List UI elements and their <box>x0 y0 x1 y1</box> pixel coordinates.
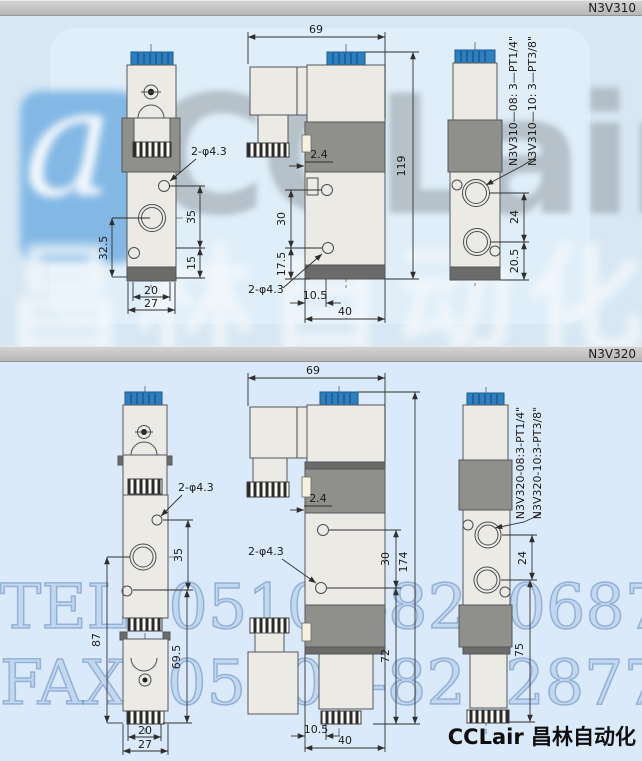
thread-spec-1: N3V320-08:3-PT1/4" <box>514 407 527 520</box>
model-label-n3v310: N3V310 <box>588 1 636 16</box>
thread-spec-2: N3V320-10:3-PT3/8" <box>531 407 544 520</box>
model-header-n3v310: N3V310 <box>0 0 642 16</box>
n3v320-technical-drawing: 2-φ4.3 35 69.5 87 20 27 <box>0 362 642 761</box>
dim-40: 40 <box>338 305 352 318</box>
n3v320-right-view <box>459 387 512 734</box>
valve-datasheet-page: N3V310 a CCLair 昌林自动化 <box>0 0 642 761</box>
dim-40: 40 <box>338 734 352 747</box>
dim-hole-side: 2-φ4.3 <box>248 545 284 558</box>
dim-10-5: 10.5 <box>303 289 328 302</box>
dim-hole-front: 2-φ4.3 <box>178 481 214 494</box>
n3v320-drawing-area: TEL: 0510—82306871 FAX: 0510—82328771 <box>0 362 642 761</box>
dim-27: 27 <box>138 738 152 751</box>
model-label-n3v320: N3V320 <box>588 347 636 362</box>
n3v320-front-view <box>112 386 178 734</box>
dim-hole-front: 2-φ4.3 <box>191 145 227 158</box>
n3v310-side-view <box>247 44 385 288</box>
dim-27: 27 <box>144 297 158 310</box>
dim-15: 15 <box>185 256 198 270</box>
dim-32-5: 32.5 <box>97 236 110 261</box>
dim-24: 24 <box>516 551 529 565</box>
n3v310-right-view <box>448 42 502 288</box>
dim-69: 69 <box>306 364 320 377</box>
dim-2-4: 2.4 <box>310 148 328 161</box>
dim-hole-side: 2-φ4.3 <box>248 283 284 296</box>
dim-75: 75 <box>513 643 526 657</box>
n3v310-front-view <box>116 44 188 288</box>
dim-24: 24 <box>508 210 521 224</box>
dim-69-5: 69.5 <box>170 645 183 670</box>
n3v320-side-view <box>247 386 385 736</box>
dim-30: 30 <box>379 552 392 566</box>
dim-2-4: 2.4 <box>309 492 327 505</box>
dim-35: 35 <box>172 548 185 562</box>
dim-20-5: 20.5 <box>508 249 521 274</box>
dim-87: 87 <box>90 633 103 647</box>
brand-footer-text: CCLair 昌林自动化 <box>448 721 636 751</box>
dim-10-5: 10.5 <box>304 723 329 736</box>
thread-spec-1: N3V310—08: 3—PT1/4" <box>507 36 520 166</box>
dim-174: 174 <box>397 552 410 573</box>
n3v310-technical-drawing: 2-φ4.3 35 15 32.5 20 27 <box>0 16 642 346</box>
dim-35: 35 <box>185 210 198 224</box>
thread-spec-2: N3V310—10: 3—PT3/8" <box>526 36 539 166</box>
dim-30: 30 <box>275 212 288 226</box>
dim-17-5: 17.5 <box>275 252 288 277</box>
dim-72: 72 <box>379 649 392 663</box>
dim-69: 69 <box>309 23 323 36</box>
dim-119: 119 <box>395 156 408 177</box>
dim-20: 20 <box>138 724 152 737</box>
dim-20: 20 <box>144 284 158 297</box>
model-header-n3v320: N3V320 <box>0 346 642 362</box>
n3v310-drawing-area: a CCLair 昌林自动化 <box>0 16 642 346</box>
